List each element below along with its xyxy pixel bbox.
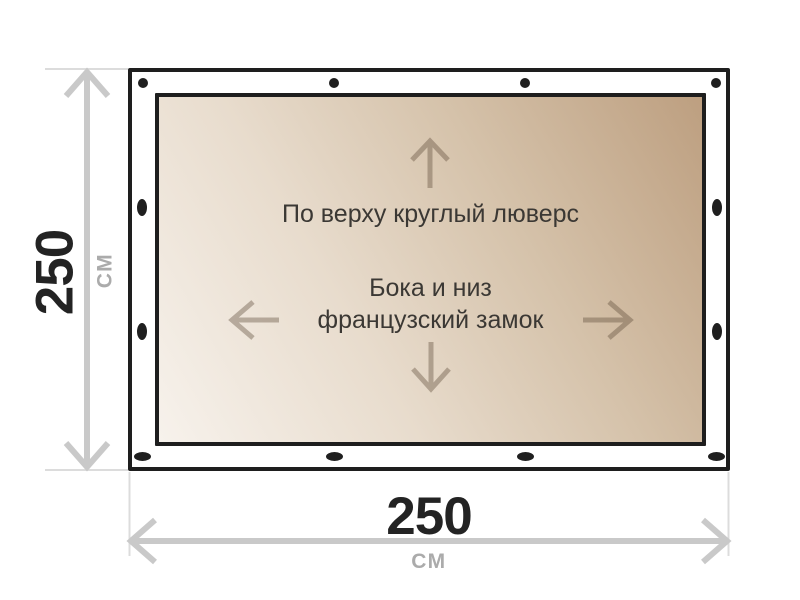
french-lock-icon <box>137 323 147 340</box>
french-lock-icon <box>712 323 722 340</box>
french-lock-icon <box>517 452 534 461</box>
lock-note: Бока и низ французский замок <box>155 272 706 336</box>
grommet-icon <box>520 78 530 88</box>
height-unit: СМ <box>79 191 132 351</box>
french-lock-icon <box>708 452 725 461</box>
arrowhead-right-icon <box>703 520 727 562</box>
width-value: 250 <box>329 490 529 543</box>
lock-note-line2: французский замок <box>155 304 706 336</box>
width-unit: СМ <box>329 551 529 572</box>
grommet-icon <box>329 78 339 88</box>
french-lock-icon <box>134 452 151 461</box>
french-lock-icon <box>326 452 343 461</box>
grommet-icon <box>711 78 721 88</box>
diagram-canvas: По верху круглый люверс Бока и низ франц… <box>0 0 800 600</box>
arrowhead-up-icon <box>66 72 108 96</box>
tarp-panel <box>155 93 706 446</box>
arrowhead-left-icon <box>131 520 155 562</box>
height-value: 250 <box>29 173 82 373</box>
grommet-note: По верху круглый люверс <box>155 198 706 230</box>
grommet-icon <box>138 78 148 88</box>
french-lock-icon <box>712 199 722 216</box>
lock-note-line1: Бока и низ <box>155 272 706 304</box>
french-lock-icon <box>137 199 147 216</box>
arrowhead-down-icon <box>66 443 108 467</box>
